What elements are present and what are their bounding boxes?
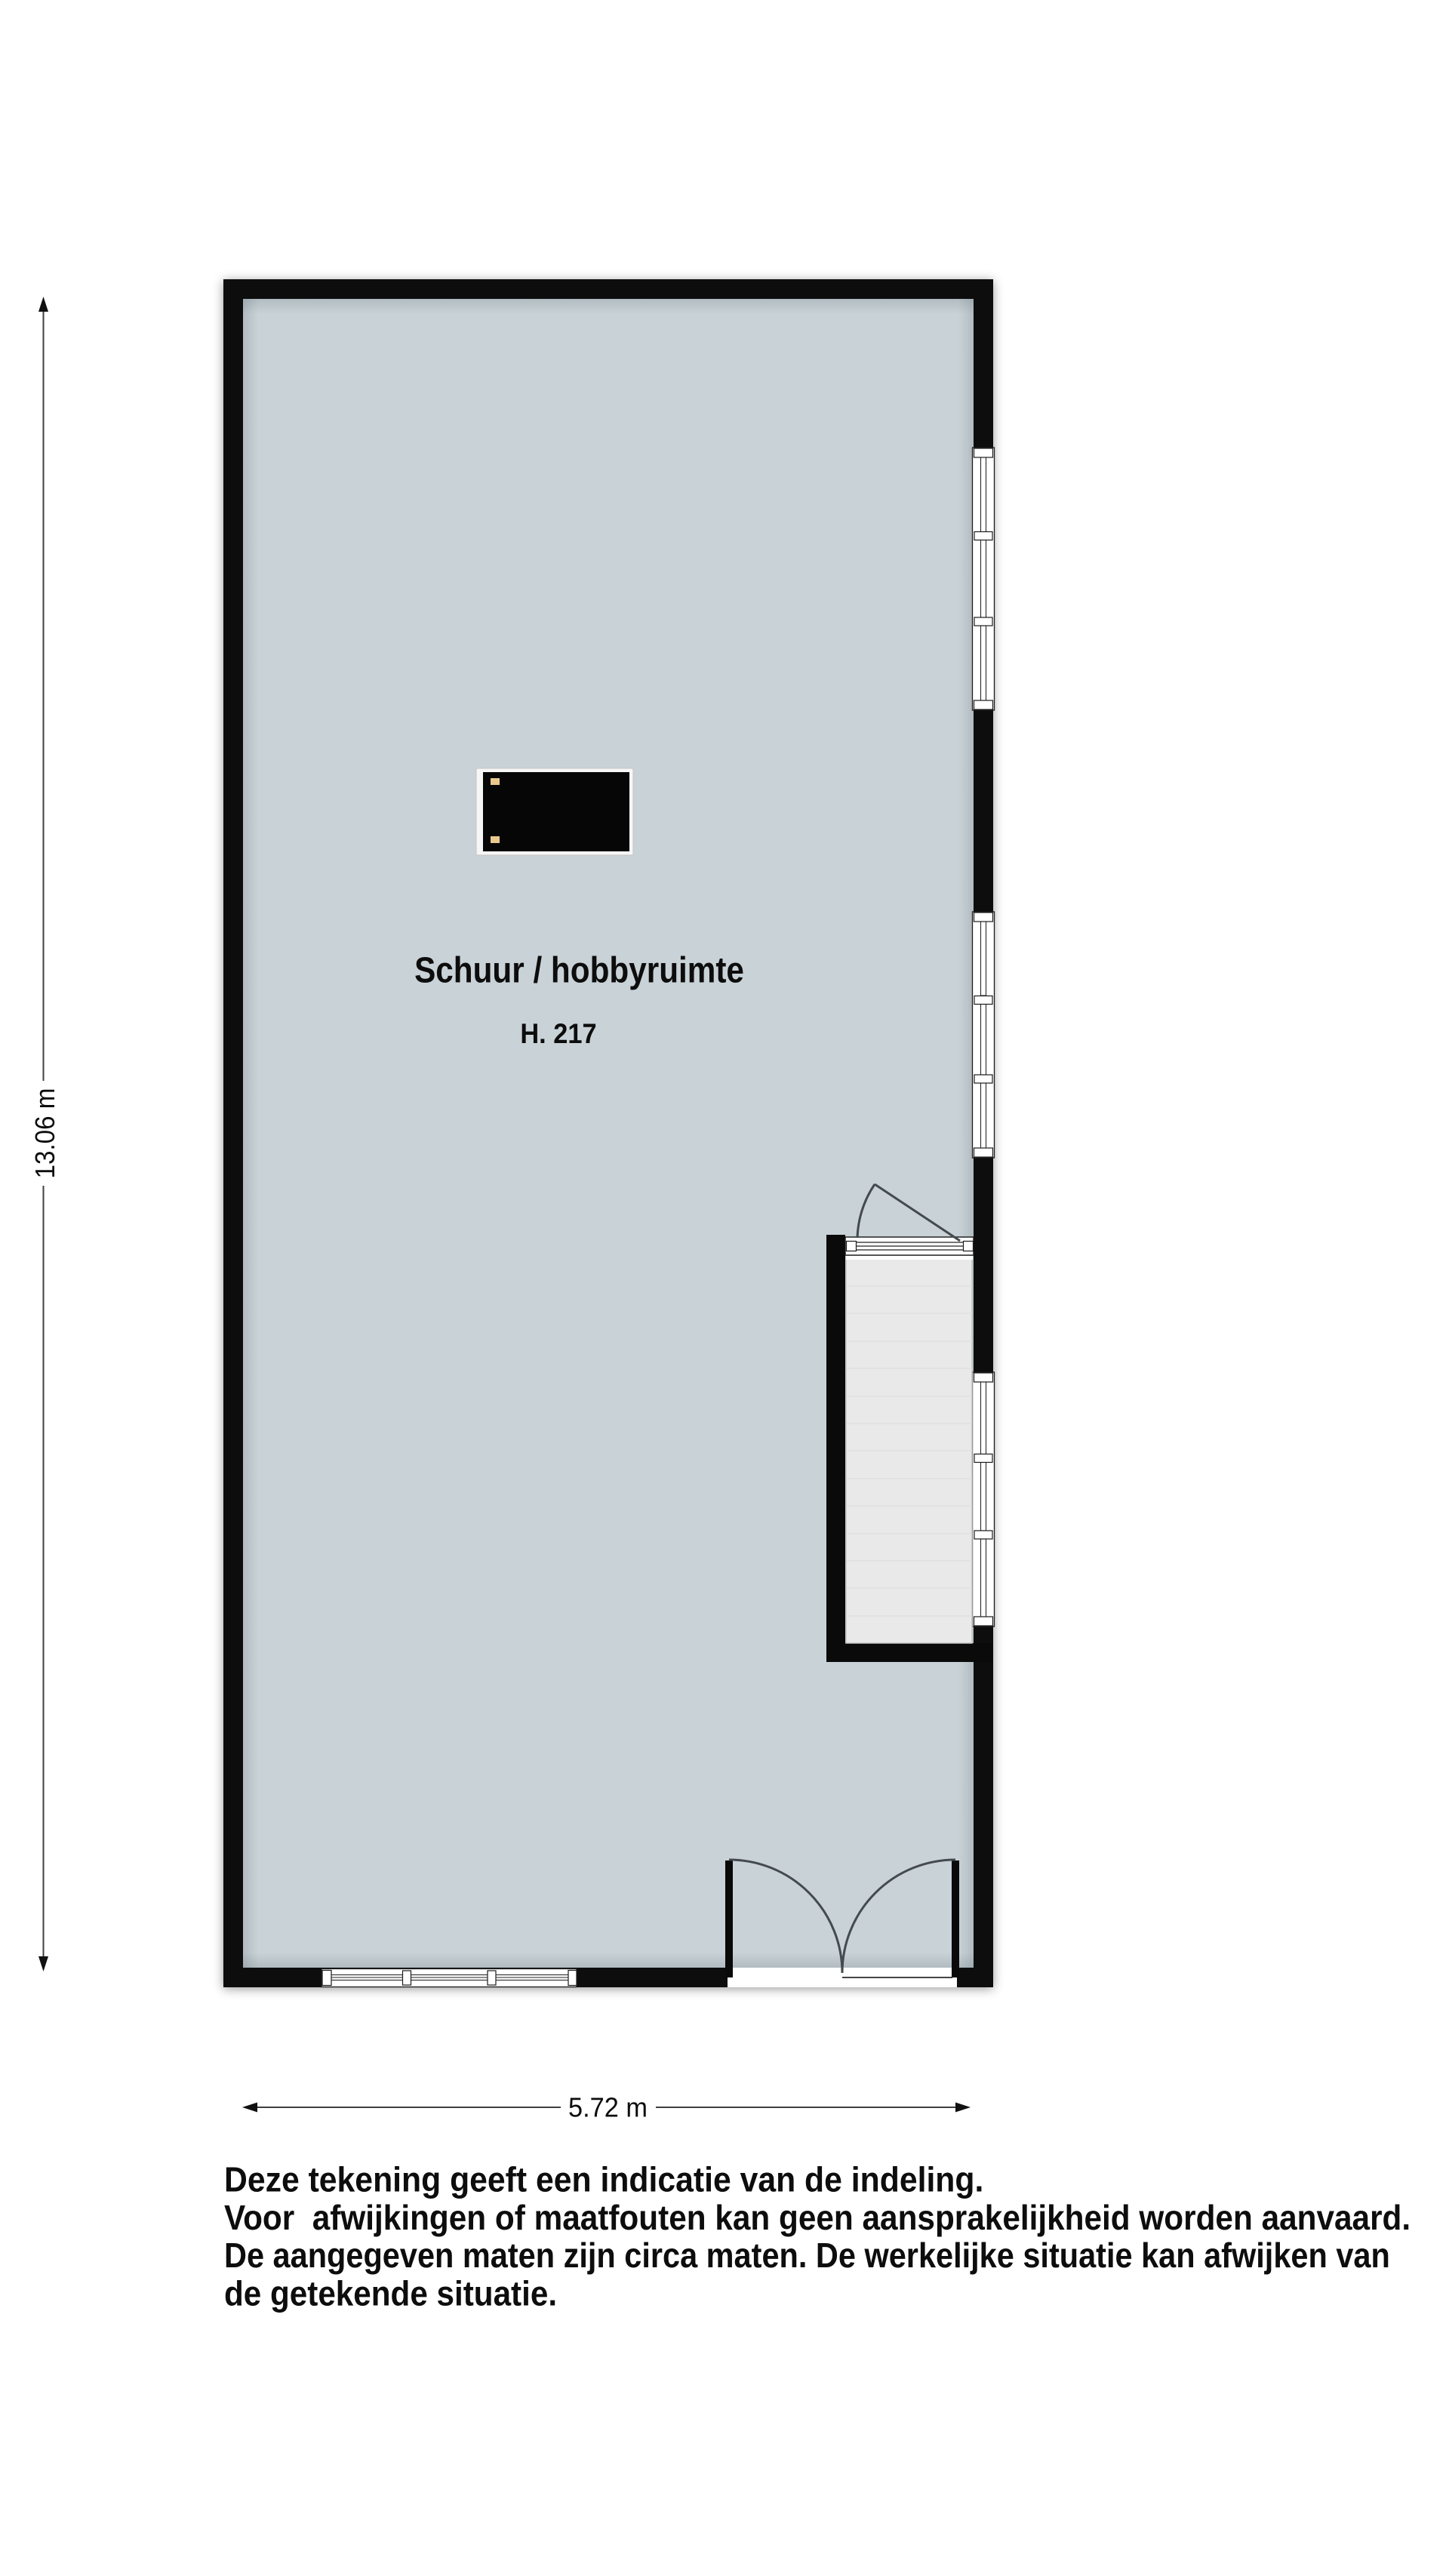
svg-text:Schuur / hobbyruimte: Schuur / hobbyruimte [414,949,744,990]
svg-text:5.72 m: 5.72 m [568,2093,648,2123]
svg-text:De aangegeven maten zijn circa: De aangegeven maten zijn circa maten. De… [224,2236,1390,2275]
svg-text:Voor afwijkingen of maatfoute: Voor afwijkingen of maatfouten kan geen … [224,2199,1411,2237]
svg-text:de getekende situatie.: de getekende situatie. [224,2275,557,2313]
svg-text:Deze tekening geeft een indica: Deze tekening geeft een indicatie van de… [224,2161,983,2199]
svg-text:13.06 m: 13.06 m [31,1088,61,1179]
svg-text:H. 217: H. 217 [520,1018,596,1049]
